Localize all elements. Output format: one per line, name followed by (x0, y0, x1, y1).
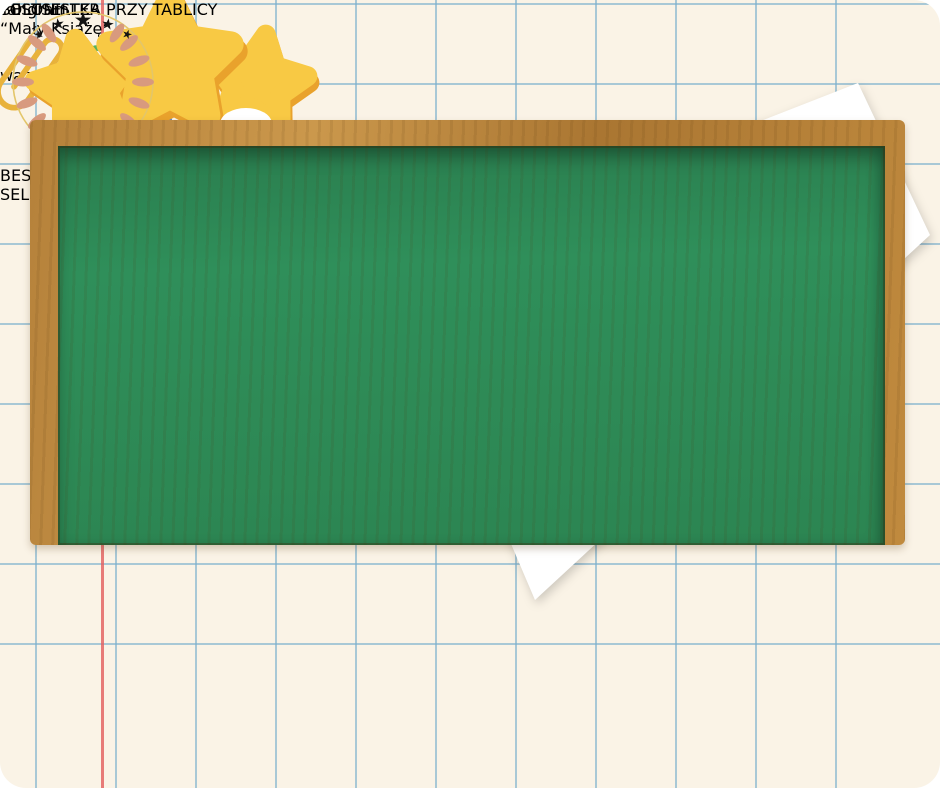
chalkboard-surface (58, 146, 885, 545)
badge-star-icon: ★ (74, 8, 93, 32)
badge-star-icon: ★ (100, 14, 116, 34)
chalkboard-frame (30, 120, 905, 545)
chalk-tray (26, 541, 910, 583)
badge-star-icon: ★ (50, 14, 66, 34)
poster-canvas: Tangram “Mały Książę” wąż / żmija pilot … (0, 0, 940, 788)
